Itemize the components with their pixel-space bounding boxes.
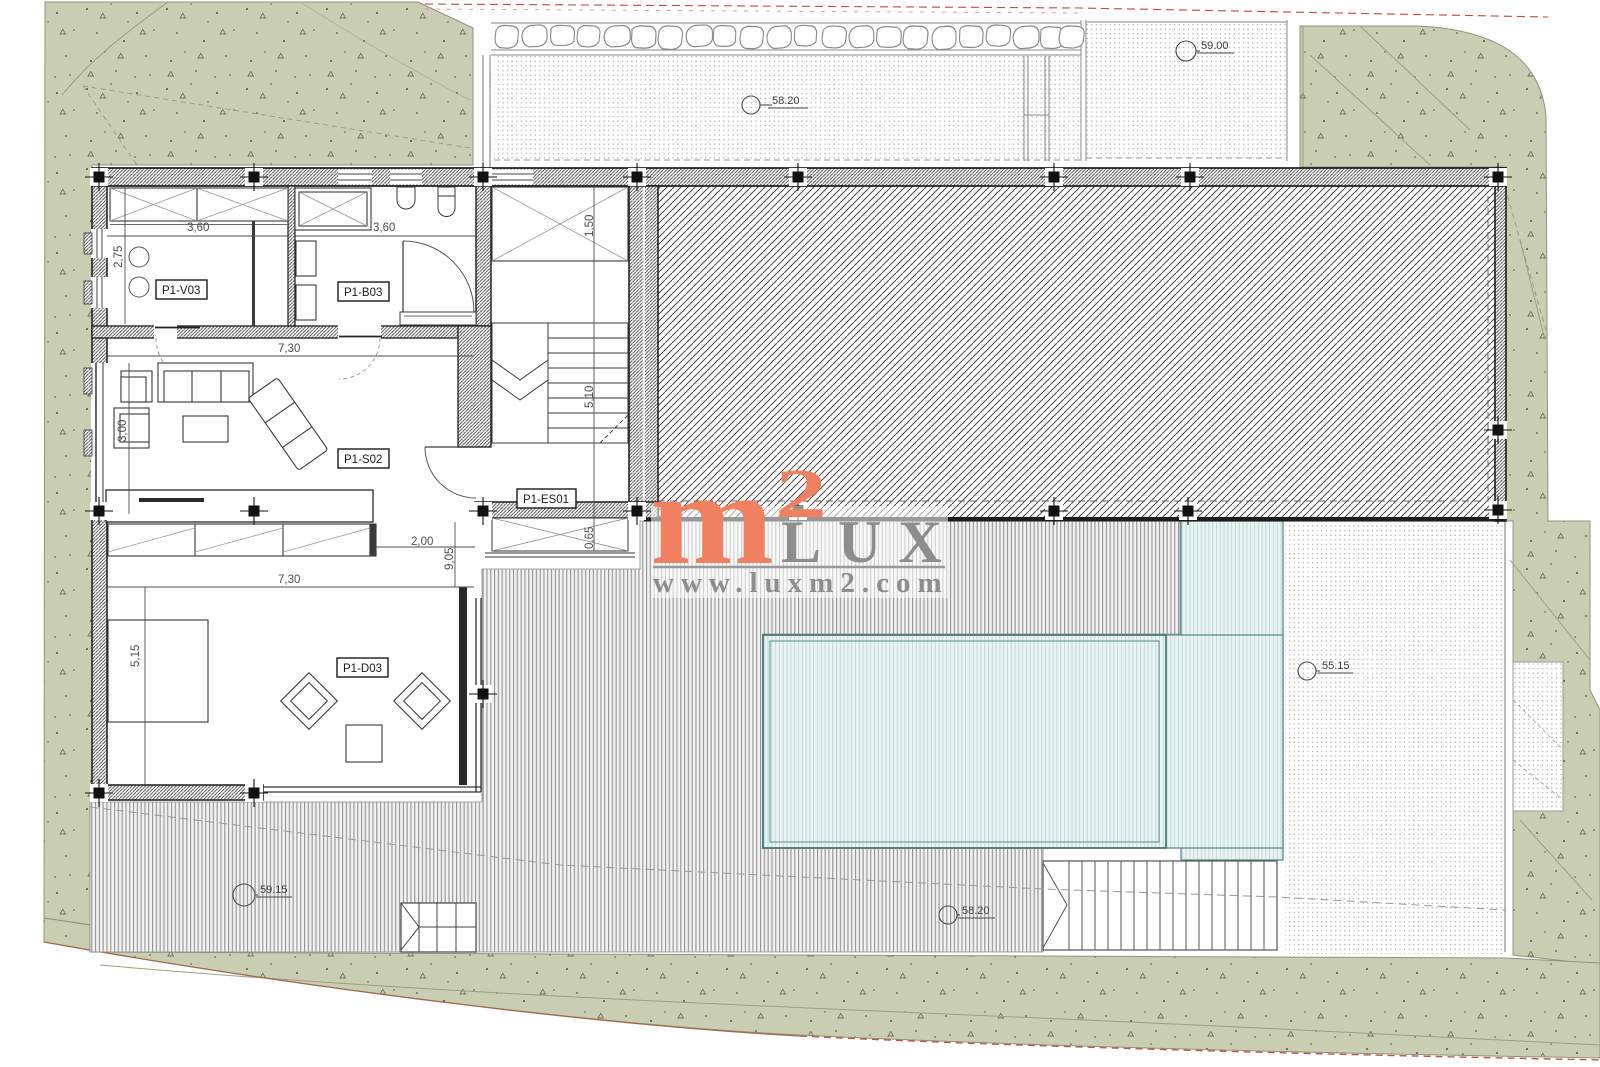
svg-text:58.20: 58.20 [962, 905, 990, 917]
svg-text:0,65: 0,65 [584, 527, 596, 549]
svg-text:55.15: 55.15 [1322, 660, 1350, 672]
svg-text:1,50: 1,50 [584, 215, 596, 237]
svg-text:59.15: 59.15 [260, 884, 288, 896]
svg-text:LUX: LUX [781, 509, 959, 575]
svg-text:3,60: 3,60 [373, 222, 395, 234]
svg-text:P1-ES01: P1-ES01 [523, 494, 569, 506]
svg-text:3,60: 3,60 [187, 222, 209, 234]
svg-text:2,75: 2,75 [113, 246, 125, 268]
svg-text:7,30: 7,30 [278, 574, 300, 586]
svg-text:58.20: 58.20 [772, 95, 800, 107]
svg-text:59.00: 59.00 [1201, 40, 1229, 52]
svg-text:P1-V03: P1-V03 [162, 285, 200, 297]
svg-text:9,05: 9,05 [444, 548, 456, 570]
svg-text:P1-D03: P1-D03 [343, 663, 382, 675]
svg-text:7,30: 7,30 [278, 343, 300, 355]
svg-text:5,15: 5,15 [130, 645, 142, 667]
svg-text:www.luxm2.com: www.luxm2.com [653, 567, 949, 599]
svg-text:P1-B03: P1-B03 [344, 287, 382, 299]
svg-text:P1-S02: P1-S02 [344, 454, 382, 466]
svg-text:5,10: 5,10 [584, 386, 596, 408]
svg-text:3,00: 3,00 [117, 420, 129, 442]
svg-text:2,00: 2,00 [411, 536, 433, 548]
